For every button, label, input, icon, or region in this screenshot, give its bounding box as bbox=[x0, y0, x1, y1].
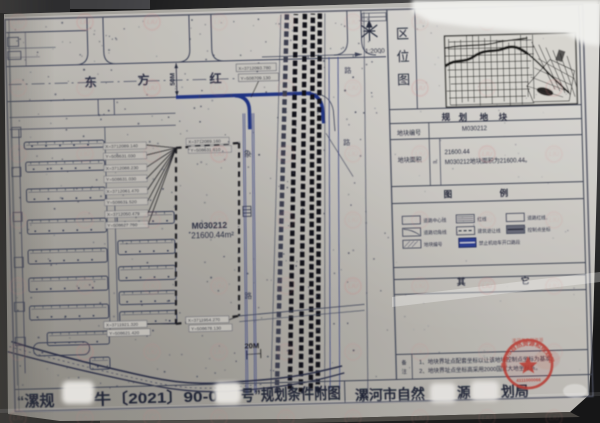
svg-text:LIU: LIU bbox=[80, 217, 91, 224]
svg-text:LIU: LIU bbox=[214, 349, 225, 356]
svg-text:LIU: LIU bbox=[482, 151, 493, 158]
svg-text:LIU: LIU bbox=[348, 349, 359, 356]
svg-text:LIU: LIU bbox=[281, 151, 292, 158]
svg-text:LIU: LIU bbox=[348, 283, 359, 290]
svg-text:LIU: LIU bbox=[415, 415, 426, 422]
svg-text:LIU: LIU bbox=[281, 349, 292, 356]
svg-text:LIU: LIU bbox=[147, 85, 158, 92]
svg-text:LIU: LIU bbox=[214, 85, 225, 92]
svg-text:LIU: LIU bbox=[214, 415, 225, 422]
svg-text:LIU: LIU bbox=[482, 85, 493, 92]
svg-text:LIU: LIU bbox=[281, 217, 292, 224]
svg-text:LIU: LIU bbox=[549, 349, 560, 356]
svg-text:LIU: LIU bbox=[214, 19, 225, 26]
svg-text:LIU: LIU bbox=[80, 85, 91, 92]
svg-text:LIU: LIU bbox=[348, 415, 359, 422]
svg-text:LIU: LIU bbox=[13, 217, 24, 224]
svg-text:LIU: LIU bbox=[13, 415, 24, 422]
svg-text:LIU: LIU bbox=[147, 217, 158, 224]
svg-text:LIU: LIU bbox=[147, 283, 158, 290]
svg-text:LIU: LIU bbox=[13, 349, 24, 356]
svg-text:LIU: LIU bbox=[147, 349, 158, 356]
svg-text:LIU: LIU bbox=[214, 151, 225, 158]
svg-text:LIU: LIU bbox=[147, 151, 158, 158]
svg-text:LIU: LIU bbox=[549, 85, 560, 92]
svg-text:LIU: LIU bbox=[80, 349, 91, 356]
svg-text:LIU: LIU bbox=[482, 217, 493, 224]
svg-text:LIU: LIU bbox=[549, 151, 560, 158]
svg-text:LIU: LIU bbox=[214, 283, 225, 290]
svg-text:LIU: LIU bbox=[549, 217, 560, 224]
svg-text:LIU: LIU bbox=[281, 19, 292, 26]
svg-text:LIU: LIU bbox=[482, 349, 493, 356]
svg-text:LIU: LIU bbox=[348, 19, 359, 26]
svg-text:LIU: LIU bbox=[415, 217, 426, 224]
svg-text:LIU: LIU bbox=[80, 415, 91, 422]
svg-text:LIU: LIU bbox=[415, 151, 426, 158]
svg-text:LIU: LIU bbox=[415, 85, 426, 92]
svg-text:LIU: LIU bbox=[281, 415, 292, 422]
svg-text:LIU: LIU bbox=[549, 415, 560, 422]
svg-text:LIU: LIU bbox=[281, 85, 292, 92]
svg-text:LIU: LIU bbox=[348, 85, 359, 92]
svg-text:LIU: LIU bbox=[13, 151, 24, 158]
svg-text:LIU: LIU bbox=[348, 217, 359, 224]
svg-text:LIU: LIU bbox=[147, 19, 158, 26]
svg-text:LIU: LIU bbox=[80, 151, 91, 158]
svg-text:LIU: LIU bbox=[80, 283, 91, 290]
svg-text:LIU: LIU bbox=[415, 283, 426, 290]
svg-text:LIU: LIU bbox=[415, 349, 426, 356]
svg-text:LIU: LIU bbox=[281, 283, 292, 290]
svg-text:LIU: LIU bbox=[482, 415, 493, 422]
svg-text:LIU: LIU bbox=[482, 283, 493, 290]
svg-text:LIU: LIU bbox=[549, 283, 560, 290]
svg-text:LIU: LIU bbox=[13, 283, 24, 290]
svg-text:LIU: LIU bbox=[348, 151, 359, 158]
svg-text:LIU: LIU bbox=[13, 85, 24, 92]
svg-text:LIU: LIU bbox=[415, 19, 426, 26]
svg-text:LIU: LIU bbox=[13, 19, 24, 26]
svg-text:LIU: LIU bbox=[214, 217, 225, 224]
svg-text:LIU: LIU bbox=[80, 19, 91, 26]
svg-text:LIU: LIU bbox=[147, 415, 158, 422]
